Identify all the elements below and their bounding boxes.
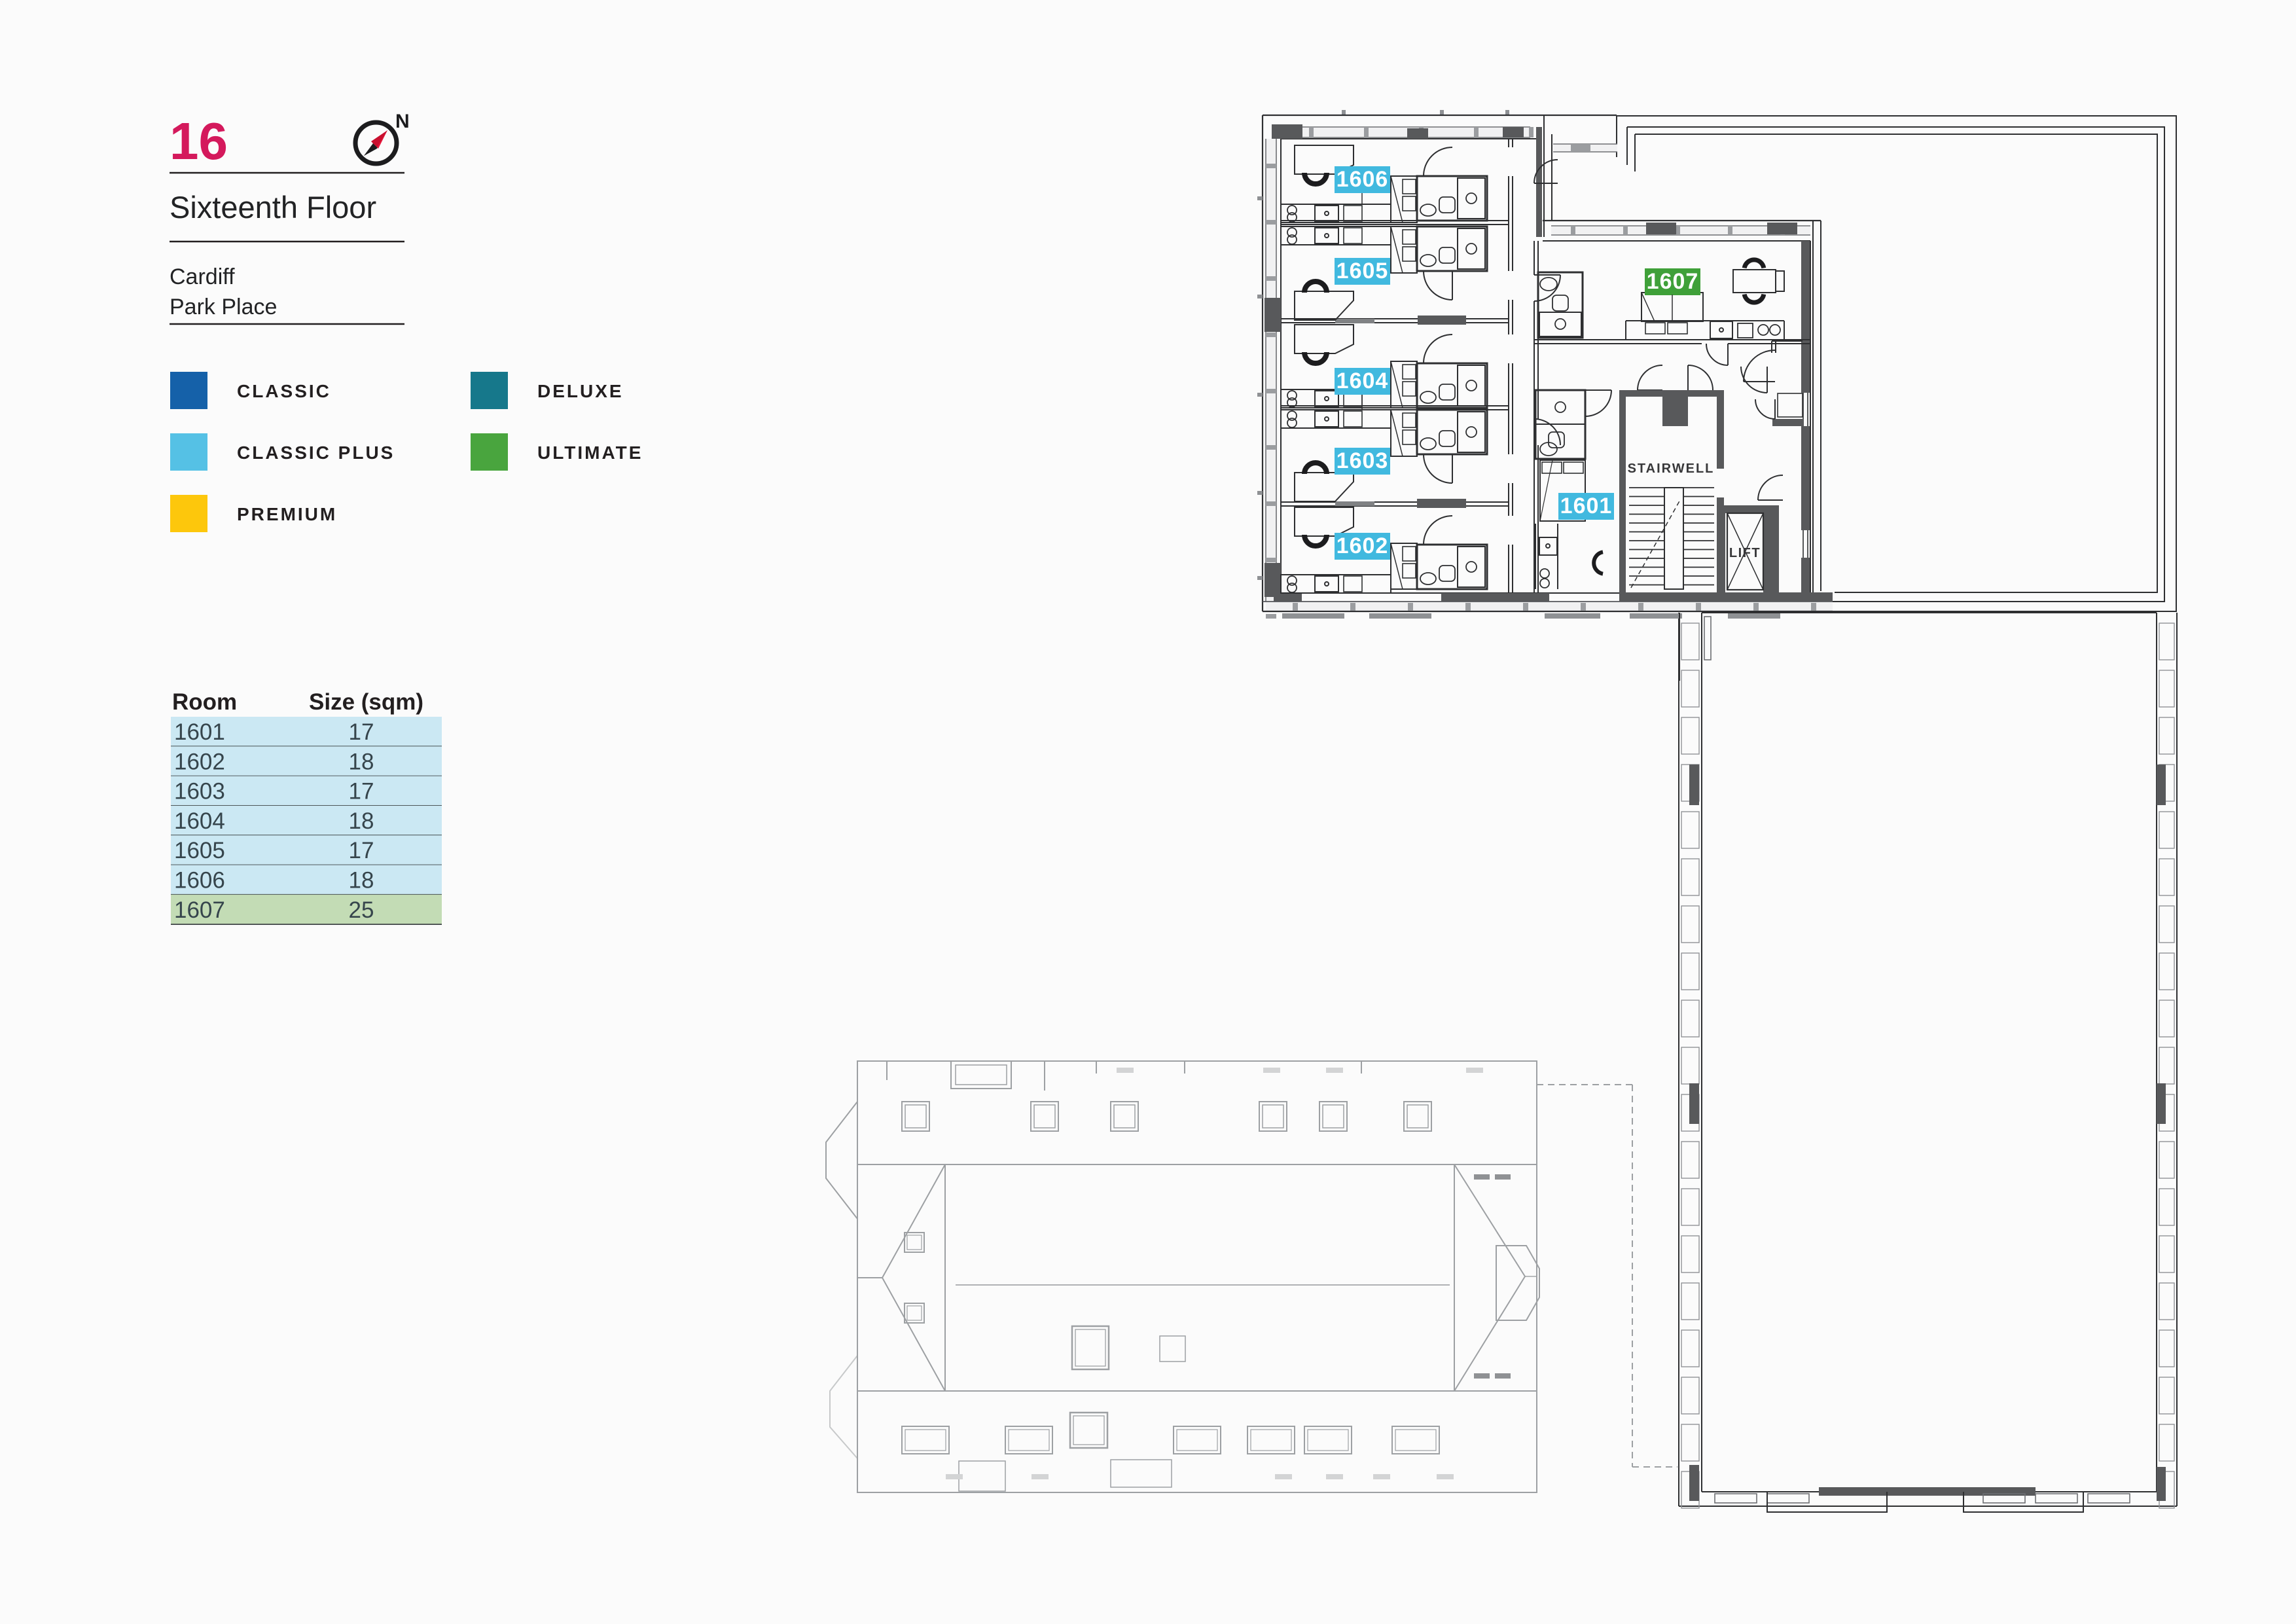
svg-text:Room: Room [172,689,237,715]
svg-text:PREMIUM: PREMIUM [237,504,337,524]
svg-text:ULTIMATE: ULTIMATE [537,442,643,463]
svg-text:17: 17 [349,719,374,745]
svg-text:1601: 1601 [174,719,225,745]
svg-text:1607: 1607 [1647,269,1699,294]
svg-text:Size (sqm): Size (sqm) [309,689,423,715]
svg-text:CLASSIC PLUS: CLASSIC PLUS [237,442,395,463]
svg-text:18: 18 [349,868,374,893]
svg-text:1606: 1606 [174,868,225,893]
svg-text:1606: 1606 [1336,167,1389,192]
svg-text:1602: 1602 [174,749,225,774]
svg-text:1602: 1602 [1336,533,1389,558]
svg-text:1607: 1607 [174,897,225,923]
svg-text:1605: 1605 [174,838,225,863]
svg-text:Park Place: Park Place [170,295,277,319]
svg-text:LIFT: LIFT [1729,546,1761,560]
svg-text:17: 17 [349,838,374,863]
svg-text:18: 18 [349,808,374,834]
svg-text:1605: 1605 [1336,259,1389,283]
svg-text:1603: 1603 [1336,448,1389,473]
svg-text:Sixteenth Floor: Sixteenth Floor [170,190,376,225]
svg-text:STAIRWELL: STAIRWELL [1628,461,1715,476]
svg-text:DELUXE: DELUXE [537,381,624,401]
svg-text:1601: 1601 [1560,494,1613,518]
svg-text:CLASSIC: CLASSIC [237,381,331,401]
svg-text:25: 25 [349,897,374,923]
svg-text:18: 18 [349,749,374,774]
svg-text:N: N [395,111,410,132]
svg-text:16: 16 [170,112,228,170]
svg-text:1604: 1604 [174,808,225,834]
svg-text:Cardiff: Cardiff [170,264,235,289]
svg-text:1603: 1603 [174,779,225,804]
svg-text:17: 17 [349,779,374,804]
svg-text:1604: 1604 [1336,369,1389,393]
